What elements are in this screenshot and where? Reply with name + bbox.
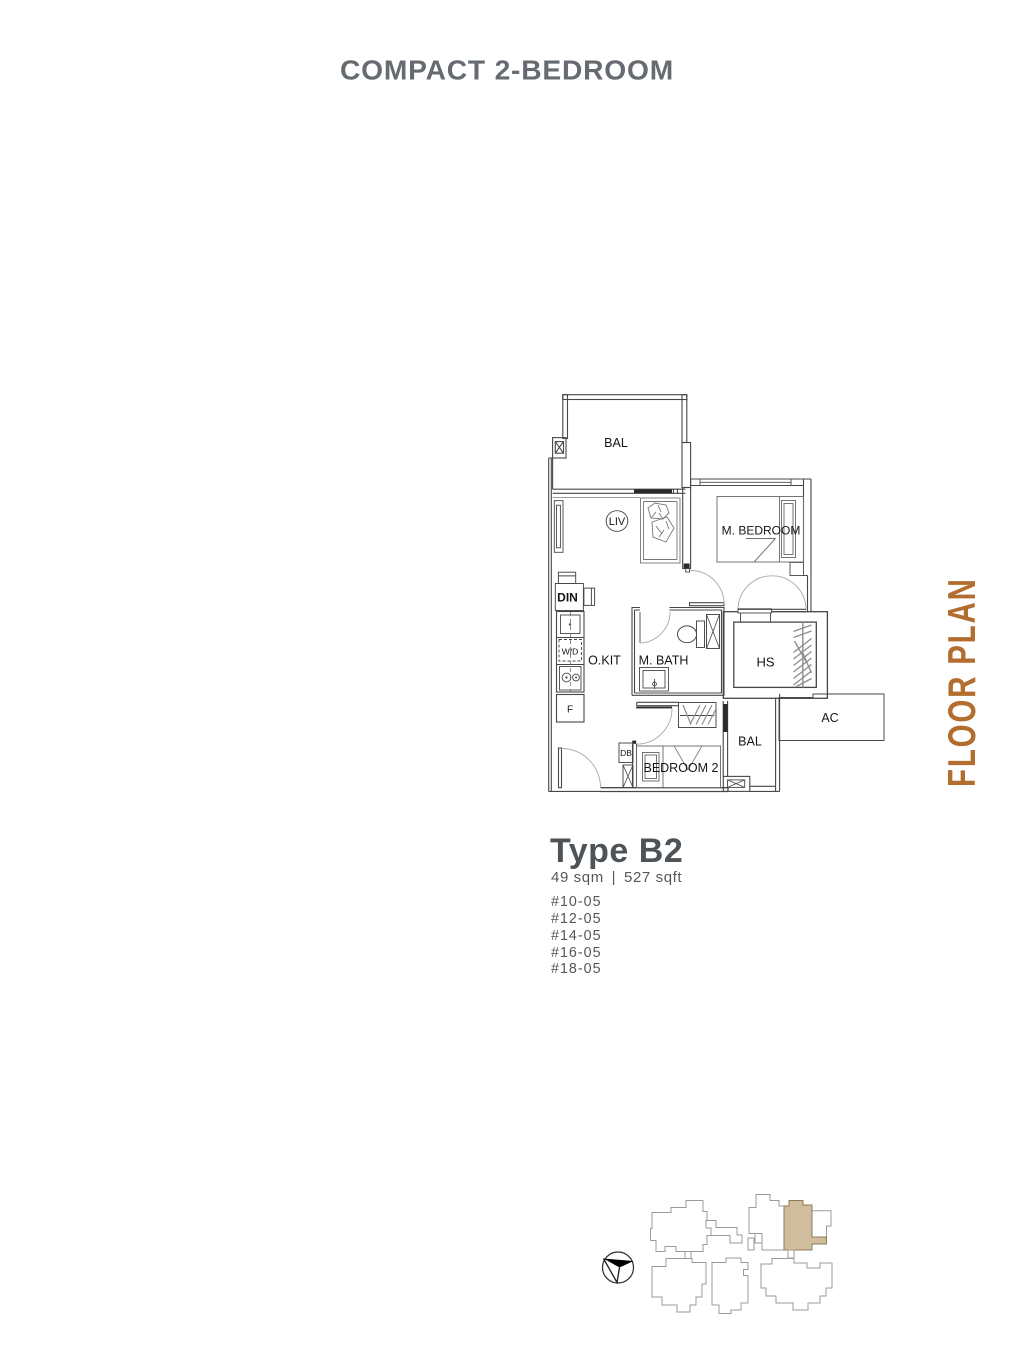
svg-text:Type B2: Type B2 [550, 832, 683, 870]
svg-text:BAL: BAL [604, 436, 628, 450]
svg-text:FLOOR PLAN: FLOOR PLAN [941, 577, 984, 787]
svg-text:#16-05: #16-05 [551, 945, 602, 961]
svg-text:HS: HS [756, 655, 774, 670]
svg-text:DIN: DIN [557, 591, 578, 605]
svg-text:O.KIT: O.KIT [588, 654, 621, 668]
svg-text:AC: AC [821, 711, 838, 725]
svg-text:#14-05: #14-05 [551, 928, 602, 944]
svg-text:LIV: LIV [609, 516, 626, 528]
svg-text:DB: DB [620, 748, 632, 758]
svg-text:COMPACT 2-BEDROOM: COMPACT 2-BEDROOM [340, 54, 674, 86]
svg-text:M. BATH: M. BATH [639, 654, 689, 668]
svg-text:49 sqm | 527 sqft: 49 sqm | 527 sqft [551, 869, 682, 886]
svg-text:M. BEDROOM: M. BEDROOM [722, 524, 801, 538]
svg-text:#10-05: #10-05 [551, 894, 602, 910]
svg-text:W/D: W/D [562, 647, 579, 657]
svg-text:F: F [567, 705, 573, 716]
svg-text:BAL: BAL [738, 735, 762, 749]
svg-text:#12-05: #12-05 [551, 911, 602, 927]
svg-text:#18-05: #18-05 [551, 961, 602, 977]
svg-text:BEDROOM 2: BEDROOM 2 [643, 761, 718, 775]
